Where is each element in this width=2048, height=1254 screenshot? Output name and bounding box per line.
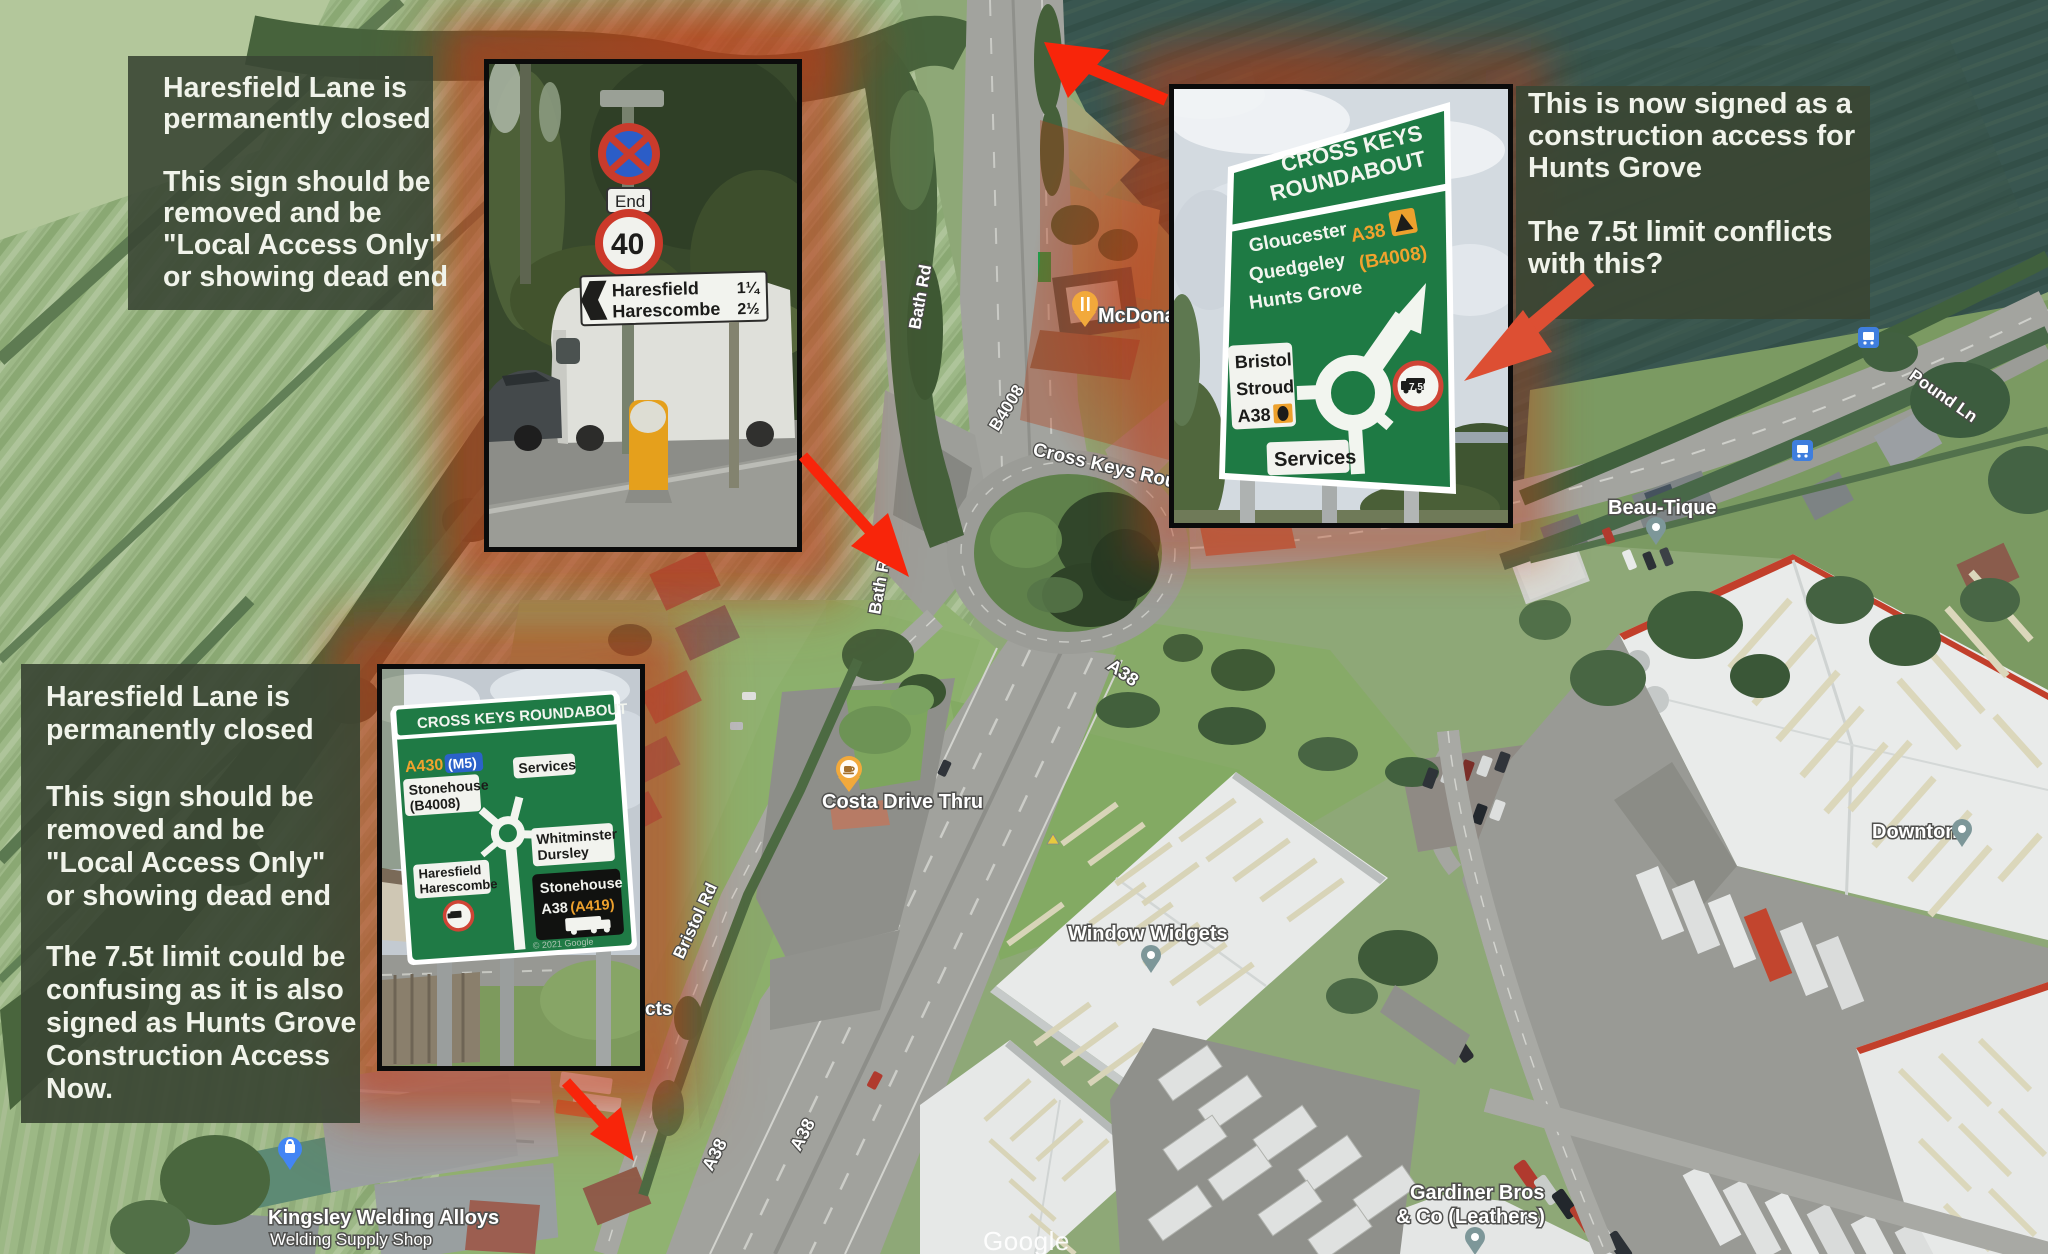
svg-text:This sign should be: This sign should be [46,781,314,813]
svg-text:"Local Access Only": "Local Access Only" [46,847,325,879]
svg-text:40: 40 [611,228,644,261]
svg-text:Window Widgets: Window Widgets [1068,923,1228,945]
svg-text:Haresfield Lane is: Haresfield Lane is [163,72,407,104]
svg-text:Beau-Tique: Beau-Tique [1608,497,1717,519]
svg-text:Stroud: Stroud [1236,376,1295,399]
svg-text:Google: Google [983,1226,1070,1254]
svg-text:confusing as it is also: confusing as it is also [46,974,344,1006]
svg-text:removed and be: removed and be [163,197,382,229]
svg-text:Bristol: Bristol [1234,349,1292,372]
svg-text:& Co (Leathers): & Co (Leathers) [1396,1206,1545,1228]
svg-text:or showing dead end: or showing dead end [46,880,331,912]
svg-text:7.5t: 7.5t [1409,382,1427,393]
svg-text:1¼: 1¼ [737,280,761,298]
svg-text:"Local Access Only": "Local Access Only" [163,229,442,261]
svg-text:Haresfield Lane is: Haresfield Lane is [46,681,290,713]
svg-text:or showing dead end: or showing dead end [163,261,448,293]
svg-text:Costa Drive Thru: Costa Drive Thru [822,791,983,813]
svg-text:permanently closed: permanently closed [163,103,431,135]
svg-text:End: End [615,192,645,211]
svg-text:Welding Supply Shop: Welding Supply Shop [270,1230,432,1249]
svg-text:The 7.5t limit conflicts: The 7.5t limit conflicts [1528,216,1833,248]
svg-text:Gardiner Bros: Gardiner Bros [1410,1182,1544,1204]
svg-text:Downton: Downton [1872,821,1958,843]
svg-text:This sign should be: This sign should be [163,166,431,198]
svg-text:with this?: with this? [1527,248,1663,280]
svg-text:removed and be: removed and be [46,814,265,846]
svg-text:Harescombe: Harescombe [612,299,721,322]
svg-text:A38: A38 [1237,405,1271,427]
svg-text:construction access for: construction access for [1528,120,1855,152]
svg-text:(M5): (M5) [447,754,477,772]
svg-text:Services: Services [1274,446,1357,471]
svg-text:permanently closed: permanently closed [46,714,314,746]
svg-text:A38: A38 [541,900,569,918]
svg-text:A430: A430 [405,757,444,777]
svg-text:Now.: Now. [46,1073,113,1105]
svg-text:The 7.5t limit could be: The 7.5t limit could be [46,941,345,973]
svg-text:Construction Access: Construction Access [46,1040,330,1072]
svg-text:Haresfield: Haresfield [612,278,700,300]
svg-text:Kingsley Welding Alloys: Kingsley Welding Alloys [268,1207,499,1229]
svg-text:Hunts Grove: Hunts Grove [1528,152,1702,184]
svg-text:(A419): (A419) [570,897,616,916]
svg-text:signed as Hunts Grove: signed as Hunts Grove [46,1007,356,1039]
svg-text:2½: 2½ [737,301,760,319]
svg-text:This is now signed as a: This is now signed as a [1528,88,1853,120]
svg-text:cts: cts [645,999,672,1020]
